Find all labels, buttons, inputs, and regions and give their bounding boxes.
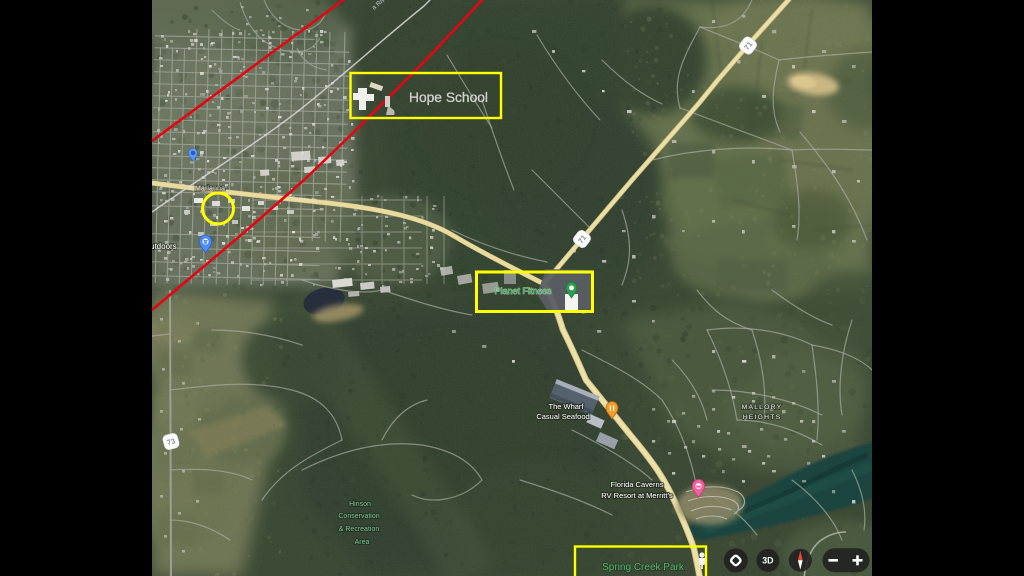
svg-text:utdoors: utdoors <box>152 242 177 251</box>
svg-text:Florida Caverns: Florida Caverns <box>611 480 664 489</box>
svg-text:Casual Seafood: Casual Seafood <box>536 412 589 421</box>
svg-text:Hope School: Hope School <box>409 90 488 105</box>
svg-text:Hinson: Hinson <box>349 501 371 508</box>
svg-text:The Wharf: The Wharf <box>548 402 584 411</box>
svg-text:Planet Fitness: Planet Fitness <box>494 286 552 296</box>
svg-text:HEIGHTS: HEIGHTS <box>743 414 782 421</box>
svg-text:3D: 3D <box>762 556 773 566</box>
svg-text:Area: Area <box>355 539 370 546</box>
svg-text:MALLORY: MALLORY <box>742 404 783 411</box>
svg-text:Conservation: Conservation <box>338 513 379 520</box>
svg-text:Spring Creek Park: Spring Creek Park <box>602 562 685 573</box>
svg-text:& Recreation: & Recreation <box>339 526 380 533</box>
svg-text:RV Resort at Merritt’s: RV Resort at Merritt’s <box>601 491 673 500</box>
svg-text:Marianna: Marianna <box>195 184 225 193</box>
